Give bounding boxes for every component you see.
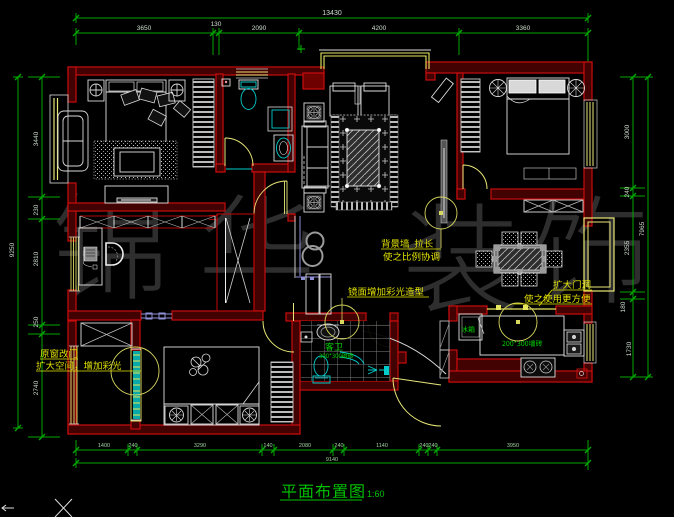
- svg-text:3290: 3290: [194, 443, 206, 449]
- svg-text:3440: 3440: [33, 131, 40, 146]
- svg-text:2355: 2355: [624, 240, 631, 255]
- svg-text:2740: 2740: [33, 380, 40, 395]
- svg-text:9140: 9140: [326, 457, 338, 463]
- svg-text:1140: 1140: [376, 443, 388, 449]
- svg-text:130: 130: [211, 21, 222, 28]
- svg-text:4200: 4200: [372, 25, 387, 32]
- svg-text:3000: 3000: [624, 124, 631, 139]
- svg-text:2810: 2810: [33, 251, 40, 266]
- svg-text:1400: 1400: [98, 443, 110, 449]
- svg-text:230: 230: [33, 204, 40, 215]
- svg-text:2080: 2080: [299, 443, 311, 449]
- svg-text:180: 180: [620, 301, 627, 312]
- svg-text:240: 240: [419, 443, 428, 449]
- svg-text:3650: 3650: [137, 25, 152, 32]
- svg-text:9250: 9250: [9, 242, 16, 257]
- svg-text:1:60: 1:60: [367, 489, 385, 499]
- svg-text:1730: 1730: [626, 341, 633, 356]
- svg-text:3360: 3360: [516, 25, 531, 32]
- svg-text:3950: 3950: [507, 443, 519, 449]
- svg-text:240: 240: [624, 186, 631, 197]
- svg-text:240: 240: [334, 443, 343, 449]
- svg-text:7965: 7965: [639, 221, 646, 236]
- svg-text:240: 240: [128, 443, 137, 449]
- svg-text:2090: 2090: [252, 25, 267, 32]
- svg-text:240: 240: [428, 443, 437, 449]
- svg-text:250: 250: [33, 316, 40, 327]
- svg-text:13430: 13430: [322, 10, 342, 17]
- svg-text:140: 140: [263, 443, 272, 449]
